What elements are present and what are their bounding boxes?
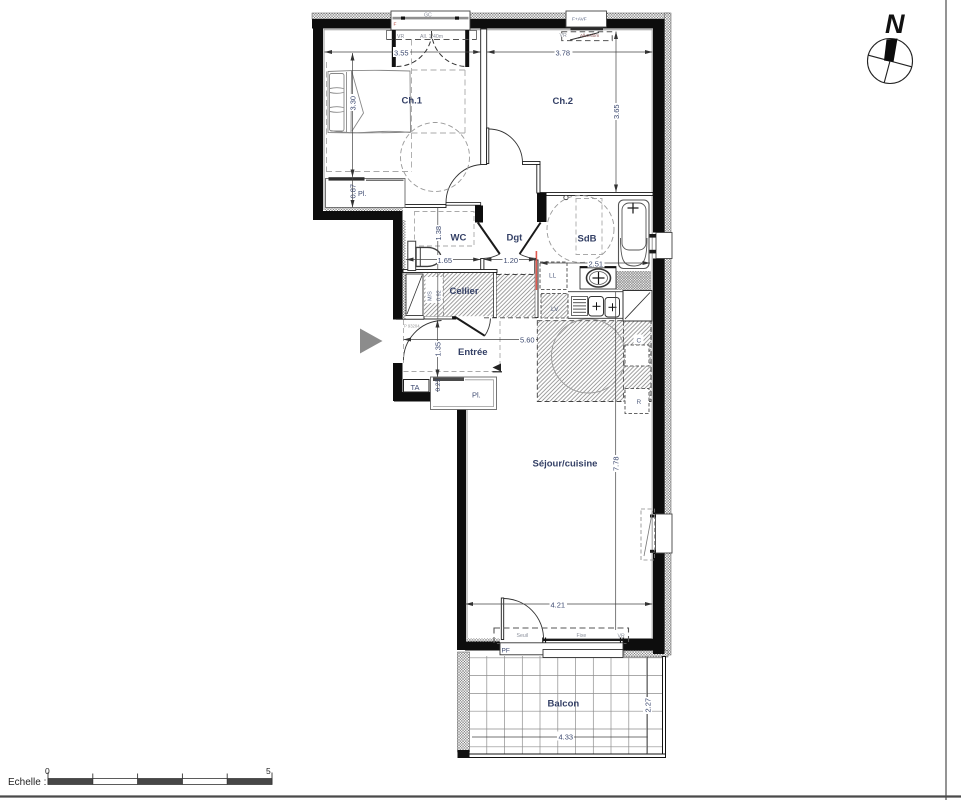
svg-text:Ch.2: Ch.2 (553, 96, 574, 107)
svg-text:1.38: 1.38 (434, 226, 443, 241)
svg-text:VR: VR (397, 34, 404, 40)
svg-text:Cellier: Cellier (450, 286, 479, 297)
svg-text:0: 0 (45, 766, 50, 776)
svg-text:LL: LL (549, 273, 557, 280)
svg-text:4.33: 4.33 (559, 733, 574, 742)
svg-text:0.87: 0.87 (349, 184, 358, 199)
svg-text:M/S: M/S (428, 291, 434, 301)
svg-text:7.78: 7.78 (612, 456, 621, 471)
svg-text:Ch.1: Ch.1 (402, 96, 423, 107)
svg-text:4.21: 4.21 (551, 600, 566, 609)
svg-text:3.78: 3.78 (556, 49, 571, 58)
svg-text:N: N (885, 9, 905, 39)
svg-text:WC: WC (451, 233, 467, 244)
svg-text:2.51: 2.51 (589, 259, 604, 268)
svg-text:5: 5 (266, 766, 271, 776)
svg-text:3.30: 3.30 (349, 96, 358, 111)
svg-text:Entrée: Entrée (458, 347, 488, 358)
svg-text:Balcon: Balcon (548, 699, 580, 710)
svg-text:3.65: 3.65 (612, 104, 621, 119)
svg-text:GC: GC (424, 13, 432, 19)
svg-text:C: C (637, 338, 642, 345)
svg-text:F+AVF: F+AVF (572, 17, 587, 23)
svg-text:Fixe: Fixe (577, 633, 587, 639)
svg-text:2.27: 2.27 (644, 698, 653, 713)
svg-text:All.0.40m: All.0.40m (580, 33, 599, 38)
svg-text:Séjour/cuisine: Séjour/cuisine (533, 459, 598, 470)
svg-text:P 93204: P 93204 (404, 324, 420, 329)
svg-text:5.60: 5.60 (520, 336, 535, 345)
svg-text:SdB: SdB (578, 234, 597, 245)
svg-text:Seuil: Seuil (517, 633, 529, 639)
svg-text:Echelle :: Echelle : (8, 777, 46, 788)
svg-text:VR: VR (560, 33, 567, 39)
svg-text:1.65: 1.65 (438, 256, 453, 265)
svg-text:F: F (394, 22, 397, 28)
svg-text:3.55: 3.55 (394, 49, 409, 58)
svg-text:Pl.: Pl. (358, 189, 366, 198)
svg-text:R: R (637, 399, 642, 406)
svg-text:TA: TA (411, 383, 420, 392)
svg-text:1.35: 1.35 (434, 342, 443, 357)
svg-text:Dgt: Dgt (507, 233, 524, 244)
svg-text:Pl.: Pl. (472, 391, 481, 400)
svg-text:LV: LV (551, 306, 559, 313)
svg-text:0.92: 0.92 (437, 290, 443, 301)
svg-text:1.20: 1.20 (504, 256, 519, 265)
svg-text:0.23: 0.23 (435, 378, 442, 391)
svg-text:PF: PF (502, 648, 510, 655)
